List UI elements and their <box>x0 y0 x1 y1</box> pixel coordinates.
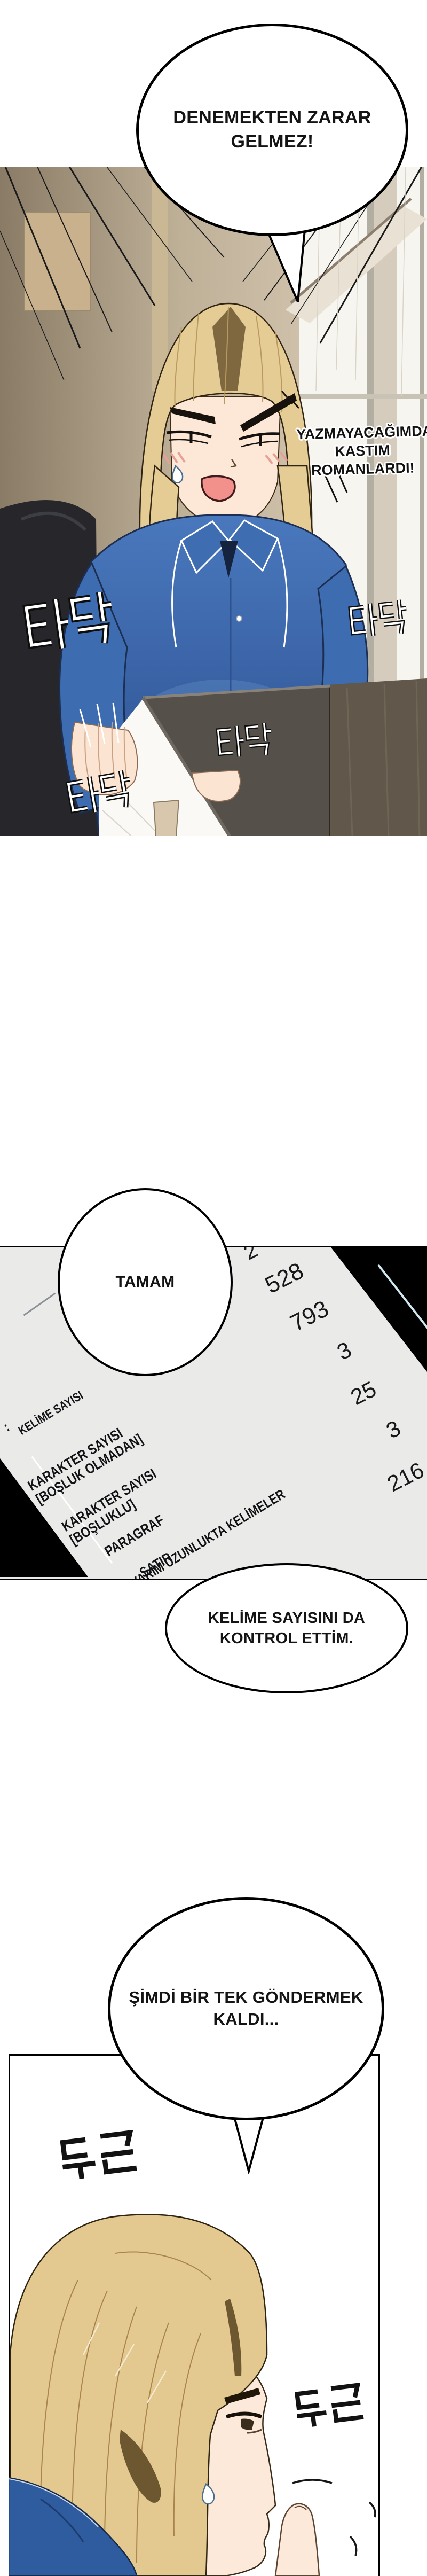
comic-page: YAZMAYACAĞIMDAN KASTIM ROMANLARDI! DENEM… <box>0 0 427 2576</box>
stat-value: 793 <box>286 1295 333 1337</box>
stat-colon: : <box>1 1419 12 1435</box>
iris <box>241 2419 254 2430</box>
sfx-tadak-icon <box>213 717 276 763</box>
stat-value: 25 <box>346 1376 380 1410</box>
stat-value: 2 <box>240 1246 262 1265</box>
stat-value: 216 <box>383 1457 427 1497</box>
speech-bubble-1: DENEMEKTEN ZARAR GELMEZ! <box>136 24 408 236</box>
speech-bubble-4: ŞİMDİ BİR TEK GÖNDERMEK KALDI... <box>108 1897 384 2120</box>
stat-label: KELİME SAYISI <box>15 1388 85 1438</box>
bubble1-line1: DENEMEKTEN ZARAR <box>173 106 371 130</box>
pointing-finger <box>275 2504 319 2576</box>
sfx-tadak-icon <box>18 583 122 660</box>
bubble2-text: TAMAM <box>116 1271 175 1293</box>
speech-bubble-2: TAMAM <box>58 1188 233 1376</box>
sfx-dugeun-icon <box>55 2125 140 2185</box>
stat-value: 3 <box>382 1415 405 1443</box>
sfx-tadak-icon <box>345 594 412 643</box>
window-rail <box>299 394 427 399</box>
desk-corner <box>154 800 179 836</box>
caption-line: KASTIM ROMANLARDI! <box>297 441 427 480</box>
bubble4-line2: KALDI... <box>129 2009 363 2031</box>
button <box>236 616 242 621</box>
stat-value: 528 <box>261 1258 308 1299</box>
caption-box: YAZMAYACAĞIMDAN KASTIM ROMANLARDI! <box>296 423 427 480</box>
bubble4-line1: ŞİMDİ BİR TEK GÖNDERMEK <box>129 1987 363 2009</box>
sfx-dugeun-icon <box>290 2377 367 2433</box>
bubble3-line1: KELİME SAYISINI DA <box>208 1608 365 1628</box>
wall-post <box>152 167 168 391</box>
panel1-artwork <box>0 167 427 836</box>
speech-bubble-3: KELİME SAYISINI DA KONTROL ETTİM. <box>165 1563 408 1693</box>
door-panel <box>25 212 91 311</box>
caption-line: YAZMAYACAĞIMDAN <box>296 423 427 444</box>
stat-value: 3 <box>333 1337 356 1365</box>
bubble3-line2: KONTROL ETTİM. <box>208 1628 365 1649</box>
desk <box>327 678 427 836</box>
bubble1-line2: GELMEZ! <box>173 130 371 154</box>
